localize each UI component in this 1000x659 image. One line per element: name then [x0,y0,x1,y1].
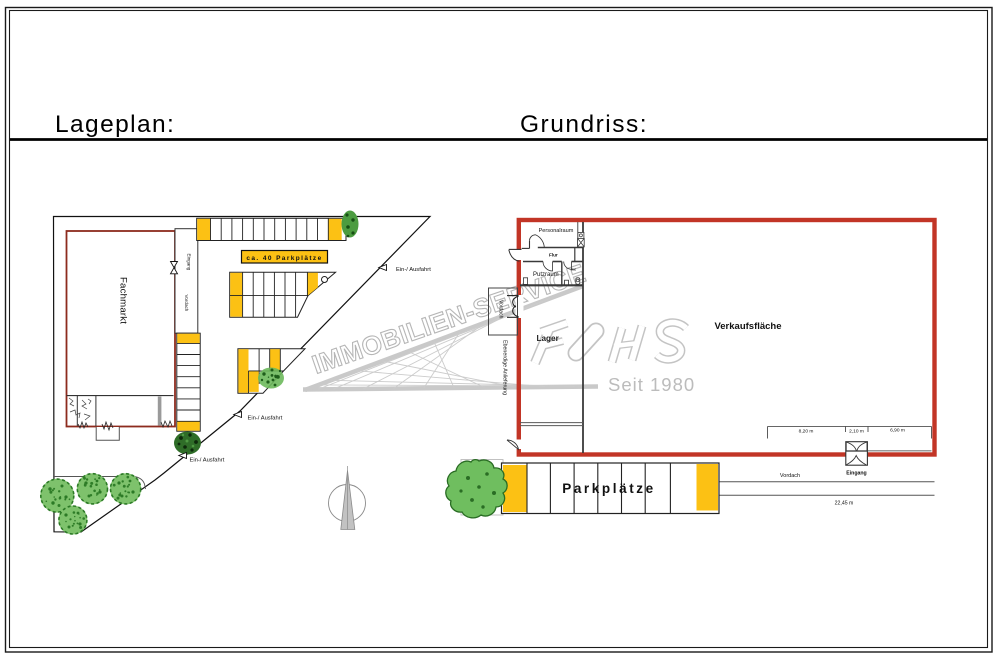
svg-text:Parkplätze: Parkplätze [562,481,656,496]
svg-text:Flur: Flur [549,253,558,258]
svg-text:6,90 m: 6,90 m [890,428,905,434]
svg-text:22,45 m: 22,45 m [835,501,854,507]
svg-text:Seit 1980: Seit 1980 [608,374,695,395]
svg-text:Eingang: Eingang [846,471,866,477]
svg-text:Ebenerdige Anlieferung: Ebenerdige Anlieferung [502,340,508,395]
svg-text:Lager: Lager [537,334,560,343]
svg-text:ca. 40 Parkplätze: ca. 40 Parkplätze [246,255,322,262]
svg-text:Putzraum: Putzraum [533,272,559,278]
svg-text:Ein-/ Ausfahrt: Ein-/ Ausfahrt [248,416,283,422]
svg-text:8,20 m: 8,20 m [799,429,814,435]
svg-text:2,10 m: 2,10 m [849,429,864,435]
svg-text:Vordach: Vordach [498,300,504,319]
svg-text:Fachmarkt: Fachmarkt [118,277,129,324]
svg-text:Ein-/ Ausfahrt: Ein-/ Ausfahrt [190,458,225,464]
svg-text:Vordach: Vordach [780,473,800,479]
svg-text:Verkaufsfläche: Verkaufsfläche [714,321,781,332]
svg-text:Vordach: Vordach [184,295,189,312]
svg-text:Ein-/ Ausfahrt: Ein-/ Ausfahrt [396,267,431,273]
svg-text:wc: wc [570,268,576,272]
svg-text:Personalraum: Personalraum [539,228,574,234]
svg-text:Lageplan:: Lageplan: [55,111,175,138]
svg-text:Grundriss:: Grundriss: [520,111,648,138]
svg-text:Eingang: Eingang [187,254,192,271]
